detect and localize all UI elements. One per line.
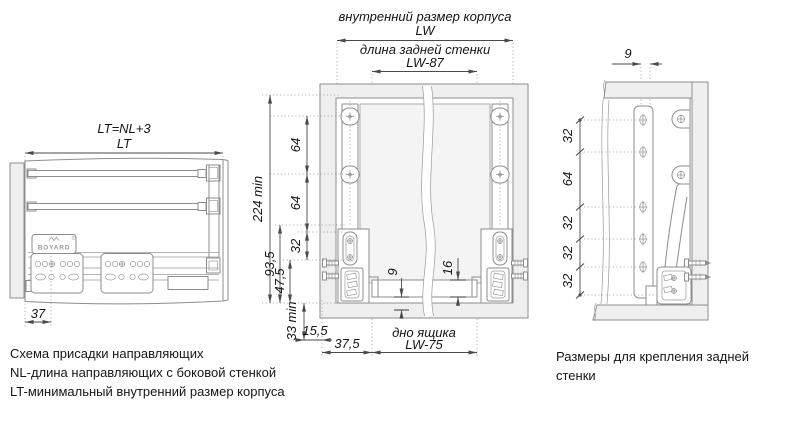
left-caption-line-1: Схема присадки направляющих [10,344,330,363]
dim-32-1-label: 32 [560,128,575,143]
middle-view-rear: внутренний размер корпуса LW длина задне… [250,9,528,356]
lt-label: LT [117,136,132,151]
dim-32-3-label: 32 [560,245,575,260]
dim-64a-label: 64 [288,138,303,152]
dim-9-right-label: 9 [624,46,631,61]
left-view-slide-side: LT=NL+3 LT [10,121,228,327]
right-dim-chain: 32 64 32 32 32 [560,117,584,299]
cabinet-bottom-section [593,305,708,320]
dim-64-label: 64 [560,172,575,186]
dim-9-label: 9 [385,268,400,275]
dim-37-5-label: 37,5 [334,336,360,351]
dim-37-label: 37 [31,306,46,321]
slide-fixing-tabs [672,110,690,184]
registered-mark: ® [72,235,76,242]
dim-15-5-label: 15,5 [302,323,328,338]
brand-logo-text: BOYARD [38,245,70,252]
lw75-label: LW-75 [405,337,443,352]
left-caption-line-2: NL-длина направляющих с боковой стенкой [10,363,330,382]
dim-32-4-label: 32 [560,273,575,288]
panel-break-right [607,100,609,304]
brand-plate: BOYARD ® [32,235,76,254]
dim-33-label: 33 min [284,301,299,340]
left-caption-line-3: LT-минимальный внутренний размер корпуса [10,382,330,401]
lw-label: LW [415,23,436,38]
dim-47-5-label: 47,5 [272,268,287,294]
dim-16-label: 16 [440,260,455,275]
lt-formula-label: LT=NL+3 [97,121,151,136]
right-caption-line-1: Размеры для крепления задней [556,347,796,366]
right-caption-line-2: стенки [556,366,796,385]
right-caption: Размеры для крепления задней стенки [556,347,796,385]
dim-224-label: 224 min [250,176,265,223]
right-view-back-fixing: 9 [560,46,711,321]
back-wall-bracket [634,106,653,298]
lw87-label: LW-87 [406,55,444,70]
dim-32-2-label: 32 [560,215,575,230]
dim-64b-label: 64 [288,196,303,210]
dim-32-label: 32 [288,238,303,253]
mounting-plate [31,254,83,294]
technical-drawing-page: LT=NL+3 LT [0,0,800,435]
left-caption: Схема присадки направляющих NL-длина нап… [10,344,330,401]
cabinet-side-wall [692,82,708,320]
front-panel-section [10,163,24,298]
mounting-plate-2 [101,254,153,294]
panel-break-left [601,100,603,304]
inner-width-title: внутренний размер корпуса [339,9,512,24]
